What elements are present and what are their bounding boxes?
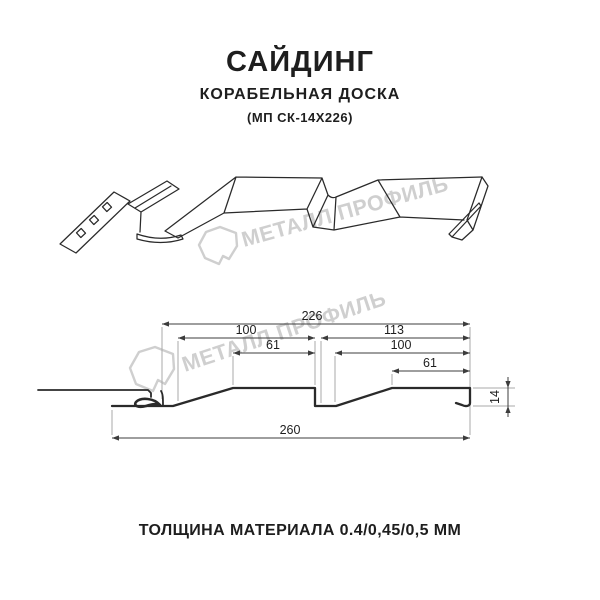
dimension-226: 226: [162, 309, 470, 327]
thickness-note: ТОЛЩИНА МАТЕРИАЛА 0.4/0,45/0,5 ММ: [0, 522, 600, 540]
dim-label-total-width: 226: [302, 309, 323, 323]
profile-outline: [112, 388, 470, 406]
technical-drawing: МЕТАЛЛ ПРОФИЛЬ МЕТАЛЛ ПРОФИЛЬ: [0, 0, 600, 600]
extension-lines: [112, 327, 515, 435]
dim-label-overall-width: 260: [280, 423, 301, 437]
nail-strip: [60, 192, 130, 253]
dim-label-left-pitch: 100: [236, 323, 257, 337]
watermark-text: МЕТАЛЛ ПРОФИЛЬ: [179, 286, 389, 377]
brand-logo-icon: [130, 347, 174, 391]
dim-label-profile-height: 14: [488, 390, 502, 404]
dimension-61-right: 61: [392, 356, 470, 374]
adjacent-panel-edge: [38, 390, 151, 397]
watermark-text: МЕТАЛЛ ПРОФИЛЬ: [239, 172, 451, 252]
lock-flap: [128, 181, 183, 243]
watermark-section-view: МЕТАЛЛ ПРОФИЛЬ: [130, 286, 389, 391]
dim-label-left-flat: 61: [266, 338, 280, 352]
nail-strip-holes: [76, 202, 111, 237]
lock-edge: [161, 391, 163, 406]
brand-logo-icon: [199, 227, 237, 264]
dimension-14: 14: [488, 377, 511, 417]
dim-label-right-slope-flat: 100: [391, 338, 412, 352]
panel-right-hem: [449, 177, 488, 240]
dimension-260: 260: [112, 423, 470, 441]
dim-label-right-flat: 61: [423, 356, 437, 370]
product-sheet: САЙДИНГ КОРАБЕЛЬНАЯ ДОСКА (МП СК-14Х226)…: [0, 0, 600, 600]
dim-label-right-pitch: 113: [384, 323, 404, 337]
dimension-100-right: 100: [335, 338, 470, 356]
